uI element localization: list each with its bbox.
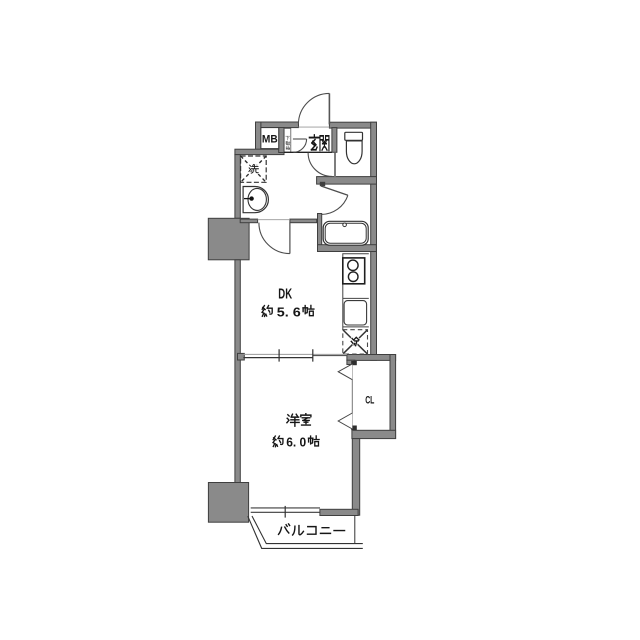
svg-text:6. 0: 6. 0 [286, 436, 306, 450]
svg-text:DK: DK [278, 287, 292, 303]
svg-text:5. 6: 5. 6 [277, 304, 301, 319]
svg-text:CL: CL [365, 394, 374, 406]
svg-text:MB: MB [262, 134, 278, 146]
